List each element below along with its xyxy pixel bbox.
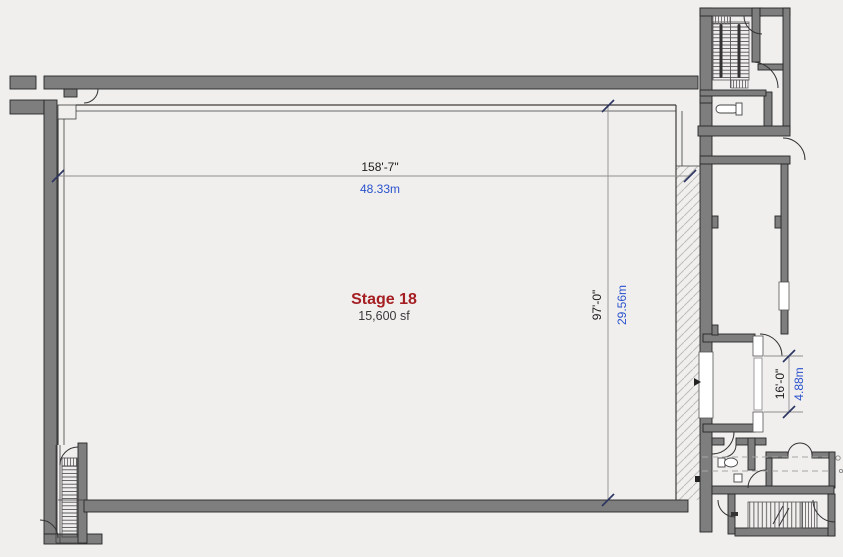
stage-area: 15,600 sf xyxy=(358,309,410,323)
stair-handle-mark xyxy=(731,512,738,516)
fountain-fixture xyxy=(716,105,738,113)
floor-plan-svg: 158'-7" 48.33m 97'-0" 29.56m 16'-0" 4.88… xyxy=(0,0,843,557)
hatch-areas xyxy=(676,166,701,500)
floor-plan-canvas: 158'-7" 48.33m 97'-0" 29.56m 16'-0" 4.88… xyxy=(0,0,843,557)
elephant-door-jamb-bottom xyxy=(753,412,763,432)
height-metric-label: 29.56m xyxy=(615,285,629,325)
toilet-bowl xyxy=(725,458,738,467)
corridor-window xyxy=(779,282,789,310)
elephant-door-panel xyxy=(754,358,762,410)
stairwell xyxy=(713,16,749,88)
toilet-tank xyxy=(718,458,725,467)
height-imperial-label: 97'-0" xyxy=(590,290,604,321)
stage-elephant-opening xyxy=(699,352,713,418)
elephant-door-imperial-label: 16'-0" xyxy=(773,369,787,400)
stage-label: Stage 18 15,600 sf xyxy=(351,291,417,323)
sink xyxy=(734,474,742,482)
elephant-door-metric-label: 4.88m xyxy=(792,367,806,400)
stair-rail xyxy=(720,24,723,78)
elephant-door-jamb-top xyxy=(753,336,763,356)
stage-name: Stage 18 xyxy=(351,291,417,308)
stair-landing-bottom xyxy=(731,80,748,88)
width-metric-label: 48.33m xyxy=(360,182,400,196)
stair-rail xyxy=(738,24,741,78)
width-imperial-label: 158'-7" xyxy=(361,160,398,174)
stair-landing-top xyxy=(713,16,730,24)
